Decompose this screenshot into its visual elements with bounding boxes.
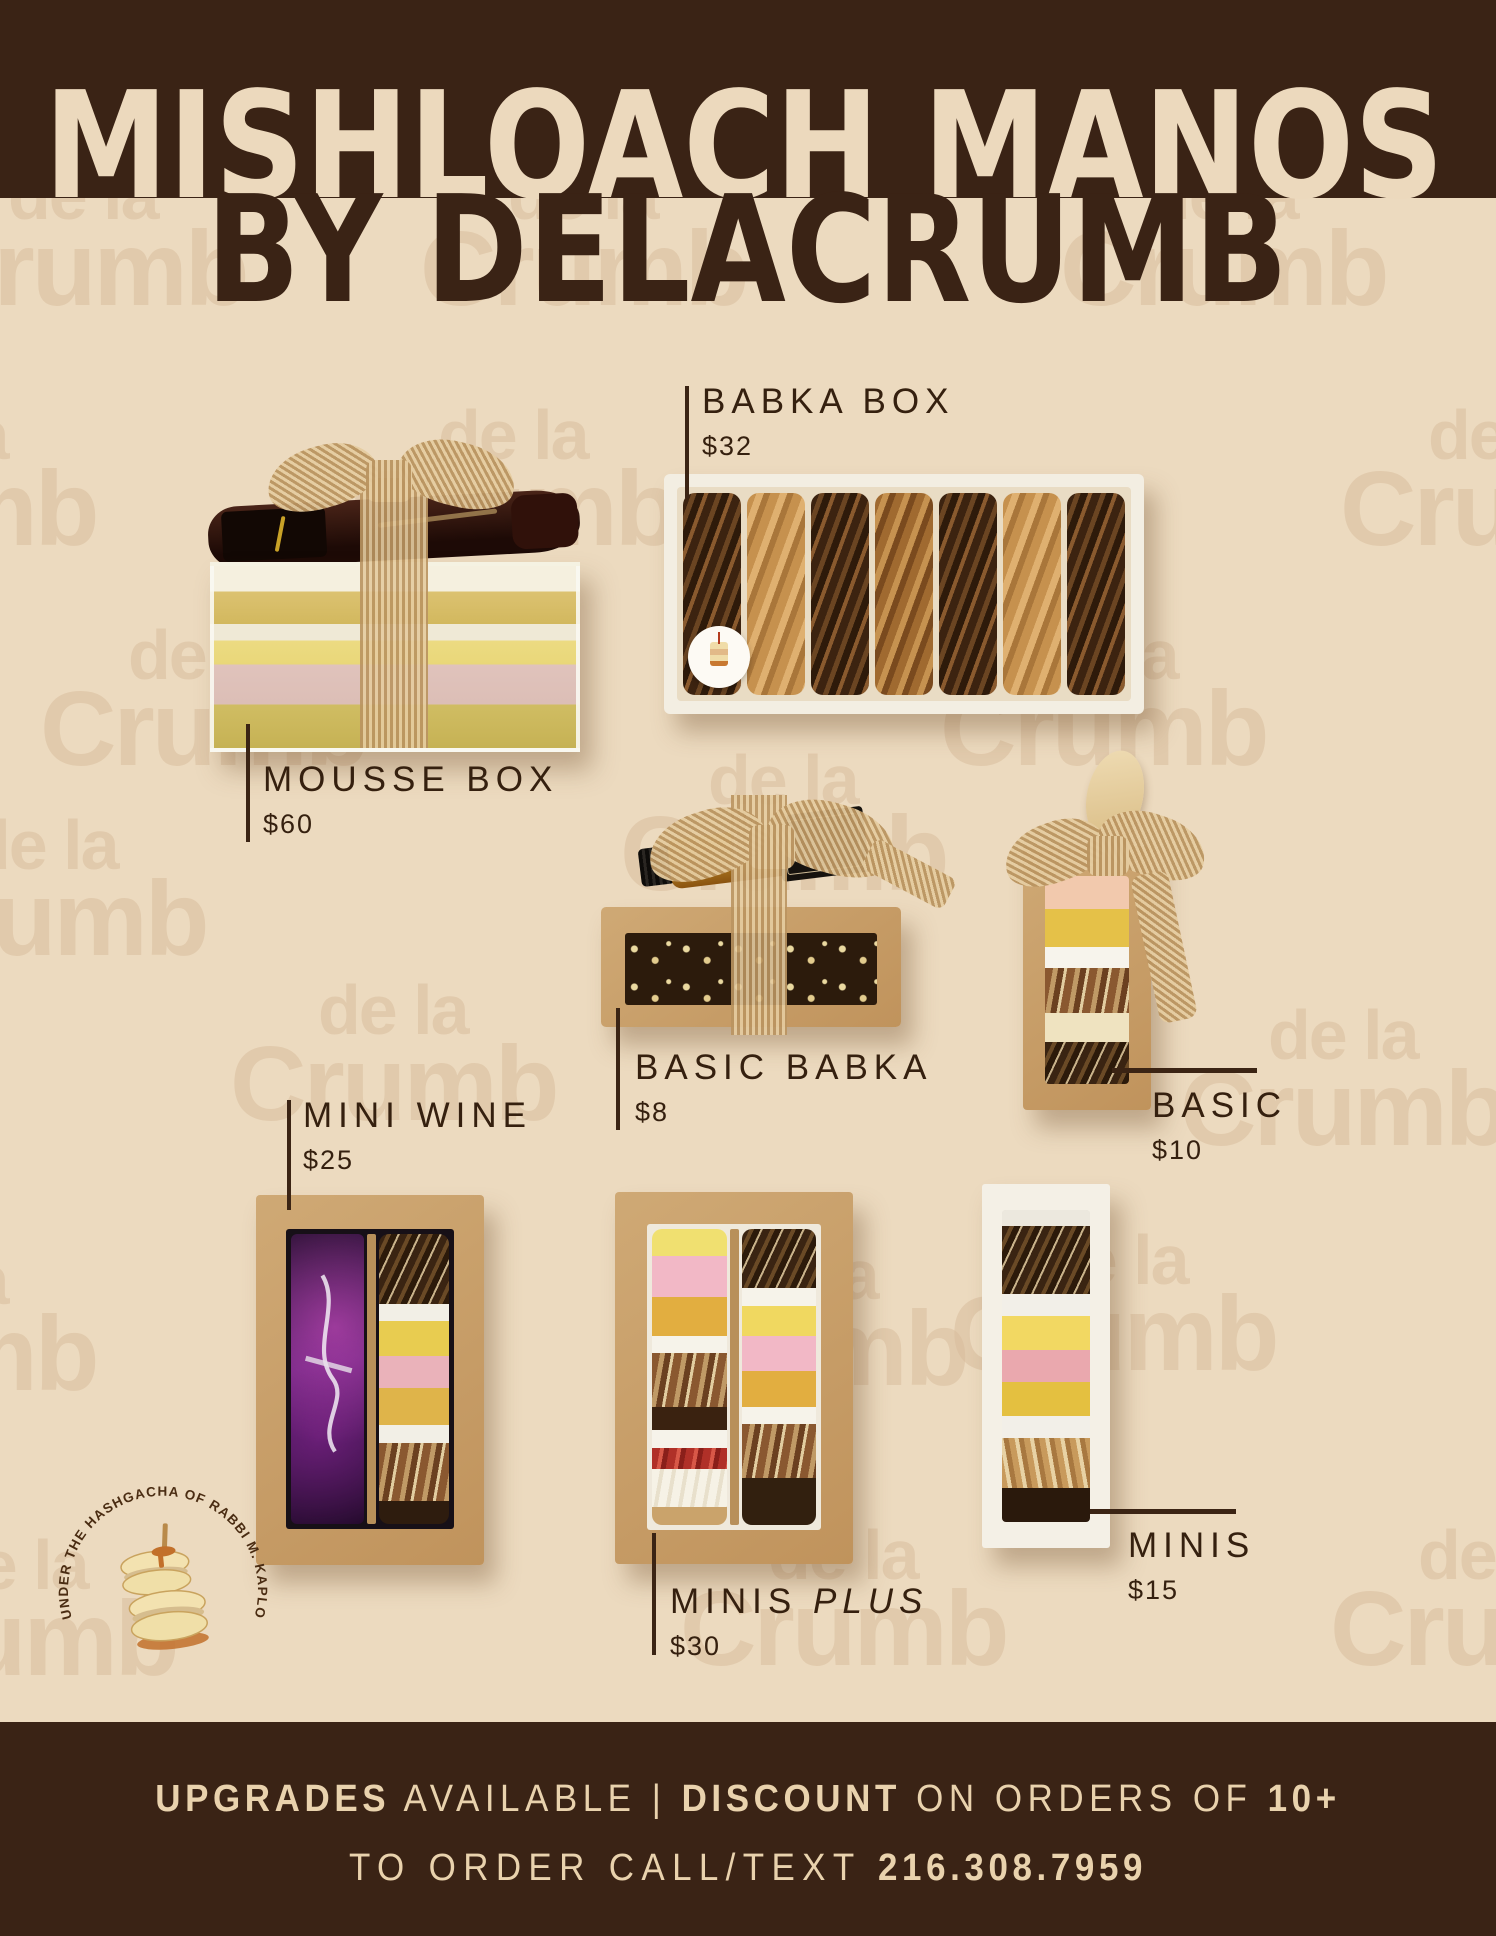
jar-layer — [379, 1501, 449, 1524]
bow-knot — [366, 460, 412, 502]
jar-layer — [742, 1371, 817, 1407]
jar-layer — [652, 1336, 727, 1354]
footer-upgrades: UPGRADES — [155, 1778, 390, 1820]
product-price: $32 — [702, 431, 954, 462]
footer-available: AVAILABLE | — [390, 1778, 681, 1820]
bow-knot — [749, 825, 795, 869]
jar-layer — [1002, 1210, 1090, 1226]
jar-layer — [1045, 968, 1129, 1014]
window-divider — [367, 1234, 376, 1524]
jar-layer — [1045, 947, 1129, 968]
bow-knot — [1087, 836, 1129, 876]
footer-line1: UPGRADES AVAILABLE | DISCOUNT ON ORDERS … — [60, 1778, 1436, 1821]
product-name-suffix: PLUS — [813, 1582, 928, 1621]
ribbon-bow — [1003, 802, 1213, 932]
ribbon-bow — [266, 432, 516, 528]
jar-layer — [652, 1297, 727, 1335]
footer-line2: TO ORDER CALL/TEXT 216.308.7959 — [60, 1847, 1436, 1890]
label-line-minis — [1090, 1509, 1236, 1514]
jar-layer — [1002, 1316, 1090, 1350]
jar-layer — [742, 1306, 817, 1336]
macaron-skewer-icon — [117, 1520, 210, 1654]
label-line-mousse-box — [246, 724, 250, 842]
jar-layer — [652, 1430, 727, 1448]
jar-layer — [379, 1443, 449, 1501]
jar-layer — [1002, 1294, 1090, 1316]
product-name: BABKA BOX — [702, 382, 954, 422]
jar-layer — [379, 1304, 449, 1321]
top-banner — [0, 0, 1496, 198]
cake-sticker-icon — [688, 626, 750, 688]
bow-tail — [860, 837, 957, 910]
label-line-mini-wine — [287, 1100, 291, 1210]
jar-layer — [652, 1256, 727, 1297]
watermark-logo: de laCrumb — [1340, 400, 1496, 562]
label-basic-babka: BASIC BABKA $8 — [635, 1048, 932, 1128]
label-minis-plus: MINIS PLUS $30 — [670, 1582, 928, 1662]
jar-layer — [742, 1336, 817, 1372]
footer-phone-number: 216.308.7959 — [878, 1847, 1147, 1889]
jar-stack — [742, 1229, 817, 1525]
jar-layer — [1002, 1438, 1090, 1488]
label-line-minis-plus — [652, 1533, 656, 1655]
footer-discount: DISCOUNT — [682, 1778, 901, 1820]
ribbon-bow — [647, 795, 917, 915]
product-price: $30 — [670, 1631, 928, 1662]
babka-twist — [747, 493, 805, 695]
babka-twist — [1067, 493, 1125, 695]
watermark-logo: de laCrumb — [0, 400, 97, 562]
babka-box-photo — [664, 474, 1144, 714]
window-divider — [730, 1229, 739, 1525]
product-price: $8 — [635, 1097, 932, 1128]
product-name: BASIC — [1152, 1086, 1287, 1126]
footer-order-text: TO ORDER CALL/TEXT — [349, 1847, 878, 1889]
footer-orders: ON ORDERS OF — [901, 1778, 1268, 1820]
wine-bottle-art — [291, 1234, 364, 1524]
kosher-badge: UNDER THE HASHGACHA OF RABBI M. KAPLOVIT… — [48, 1442, 283, 1692]
product-price: $60 — [263, 809, 558, 840]
basic-babka-photo — [595, 795, 935, 1040]
label-line-babka-box — [685, 386, 689, 498]
jar-layer — [742, 1229, 817, 1288]
label-mousse-box: MOUSSE BOX $60 — [263, 760, 558, 840]
jar-layer — [379, 1321, 449, 1356]
mousse-box-photo — [150, 430, 620, 760]
jar-layer — [652, 1229, 727, 1256]
jar-layer — [379, 1234, 449, 1304]
jar-stack — [379, 1234, 449, 1524]
jar-layer — [379, 1425, 449, 1442]
jar-layer — [379, 1388, 449, 1426]
label-line-basic-babka — [616, 1008, 620, 1130]
jar-layer — [652, 1448, 727, 1469]
jar-layer — [652, 1353, 727, 1406]
product-name: MINI WINE — [303, 1096, 532, 1136]
mini-wine-photo — [256, 1195, 484, 1565]
jar-layer — [1002, 1350, 1090, 1381]
babka-twist — [1003, 493, 1061, 695]
jar-layer — [379, 1356, 449, 1388]
jar-layer — [1002, 1416, 1090, 1438]
jar-layer — [1045, 1013, 1129, 1042]
box-window — [647, 1224, 821, 1530]
label-mini-wine: MINI WINE $25 — [303, 1096, 532, 1176]
babka-twist — [875, 493, 933, 695]
minis-plus-photo — [615, 1192, 853, 1564]
jar-layer — [742, 1288, 817, 1306]
label-babka-box: BABKA BOX $32 — [702, 382, 954, 462]
flyer-page: de laCrumb de laCrumb de laCrumb de laCr… — [0, 0, 1496, 1936]
product-name: BASIC BABKA — [635, 1048, 932, 1088]
jar-layer — [742, 1478, 817, 1525]
watermark-logo: de laCrumb — [1330, 1520, 1496, 1682]
jar-layer — [652, 1507, 727, 1525]
jar-layer — [742, 1424, 817, 1477]
product-price: $15 — [1128, 1575, 1255, 1606]
box-window-jar — [1002, 1210, 1090, 1522]
jar-layer — [1002, 1488, 1090, 1522]
jar-layer — [1002, 1382, 1090, 1416]
product-name: MINIS PLUS — [670, 1582, 928, 1622]
product-price: $10 — [1152, 1135, 1287, 1166]
jar-layer — [652, 1469, 727, 1507]
babka-twist — [939, 493, 997, 695]
jar-layer — [742, 1407, 817, 1425]
jar-layer — [652, 1407, 727, 1431]
watermark-logo: de laCrumb — [0, 1245, 97, 1407]
watermark-logo: de laCrumb — [0, 810, 207, 972]
sticker-drip — [718, 632, 720, 644]
footer-ten-plus: 10+ — [1268, 1778, 1341, 1820]
product-name: MINIS — [1128, 1526, 1255, 1566]
product-name: MOUSSE BOX — [263, 760, 558, 800]
label-minis: MINIS $15 — [1128, 1526, 1255, 1606]
sticker-cake — [710, 642, 728, 666]
jar-layer — [1002, 1226, 1090, 1295]
wine-bottle-neck — [510, 492, 579, 549]
galaxy-wine-bottle — [291, 1234, 364, 1524]
jar-layer — [1045, 1042, 1129, 1084]
label-line-basic — [1112, 1068, 1257, 1073]
footer-bar: UPGRADES AVAILABLE | DISCOUNT ON ORDERS … — [0, 1722, 1496, 1936]
box-window — [286, 1229, 454, 1529]
jar-stack — [652, 1229, 727, 1525]
babka-twist — [811, 493, 869, 695]
minis-photo — [982, 1184, 1110, 1548]
product-price: $25 — [303, 1145, 532, 1176]
label-basic: BASIC $10 — [1152, 1086, 1287, 1166]
